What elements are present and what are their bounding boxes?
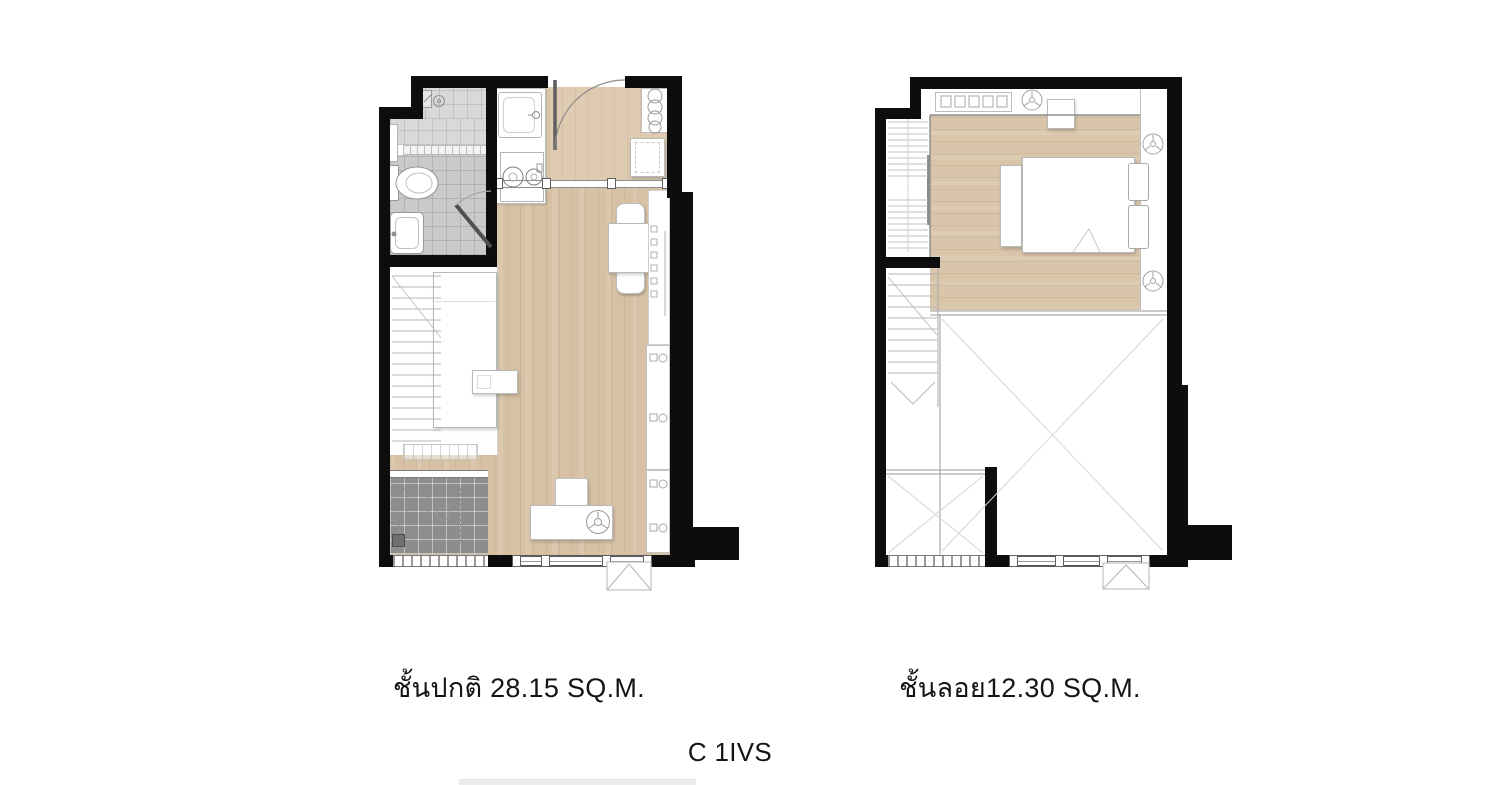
- shelf-strip-upper: [648, 190, 670, 345]
- wall-bottom-c: [1150, 555, 1188, 567]
- wall-right-upper: [667, 76, 682, 198]
- window-mullion: [1141, 555, 1150, 567]
- wall-bottom-c: [651, 555, 695, 567]
- wall-bottom-a: [875, 555, 888, 567]
- wall-top: [910, 77, 1182, 89]
- plan-mezzanine-floor: [875, 77, 1237, 597]
- lower-roof-louver: [888, 555, 985, 567]
- shoe-cabinet: [641, 88, 669, 133]
- plan-normal-floor: [379, 76, 740, 596]
- bed-side-table-inner: [477, 375, 491, 389]
- window-mullion: [1055, 555, 1064, 567]
- living-window: [516, 555, 651, 567]
- lower-roof-cross-lines: [888, 476, 983, 553]
- label-normal-floor: ชั้นปกติ 28.15 SQ.M.: [379, 666, 659, 709]
- low-console: [403, 444, 478, 460]
- balcony-drain: [392, 534, 405, 547]
- bed-single: [433, 272, 497, 428]
- balcony-louver: [393, 555, 488, 567]
- bottom-partial-bar: [459, 779, 696, 785]
- window-mullion: [512, 555, 521, 567]
- balcony-sliding-door: [390, 470, 488, 478]
- pillow-2: [1128, 205, 1149, 249]
- wall-stair-top: [876, 257, 940, 268]
- bar-post: [607, 178, 616, 189]
- wardrobe-top: [935, 92, 1012, 112]
- wall-foot: [693, 527, 739, 560]
- wall-right-lower: [1167, 385, 1188, 560]
- ladder-slats: [888, 119, 928, 252]
- dining-table: [608, 223, 652, 273]
- shower-floor-2: [390, 119, 486, 145]
- window-mullion: [1009, 555, 1018, 567]
- wall-right-main: [670, 192, 693, 560]
- stove: [500, 152, 544, 202]
- wall-bath-divider: [486, 87, 497, 267]
- basin-bowl: [395, 217, 419, 249]
- bed-pillow-line: [435, 301, 495, 302]
- label-unit-code: C 1IVS: [630, 737, 830, 768]
- wall-void-divider: [985, 467, 997, 555]
- wardrobe-strip-low: [646, 470, 670, 553]
- floorplan-canvas: ชั้นปกติ 28.15 SQ.M. ชั้นลอย12.30 SQ.M. …: [0, 0, 1500, 785]
- label-mezzanine-floor: ชั้นลอย12.30 SQ.M.: [880, 666, 1160, 709]
- window-mullion: [541, 555, 550, 567]
- shower-threshold: [403, 145, 486, 155]
- wall-left: [875, 108, 886, 567]
- window-mullion: [602, 555, 611, 567]
- wall-left: [379, 107, 390, 567]
- wall-top-left: [411, 76, 548, 88]
- void-cross-lines: [942, 319, 1163, 551]
- low-counter-bar: [494, 180, 671, 188]
- wardrobe-strip-mid: [646, 345, 670, 470]
- wall-bath-bottom: [379, 255, 497, 267]
- desk: [530, 505, 613, 540]
- double-bed: [1022, 157, 1135, 253]
- wall-foot: [1188, 525, 1232, 560]
- window-mullion: [1099, 555, 1108, 567]
- wall-bottom-a: [379, 555, 393, 567]
- wall-right-upper: [1167, 77, 1182, 395]
- ac-outdoor-unit-inner: [406, 495, 428, 535]
- fridge-inner: [635, 142, 660, 173]
- handrail: [927, 155, 930, 225]
- bar-post: [542, 178, 551, 189]
- kitchen-sink-bowl: [503, 97, 535, 133]
- window-mullion: [643, 555, 652, 567]
- void-window: [1013, 555, 1150, 567]
- mezzanine-railing: [886, 311, 1167, 555]
- tv-unit: [1047, 99, 1075, 129]
- bed-bench: [1000, 165, 1022, 247]
- pillow-1: [1128, 163, 1149, 201]
